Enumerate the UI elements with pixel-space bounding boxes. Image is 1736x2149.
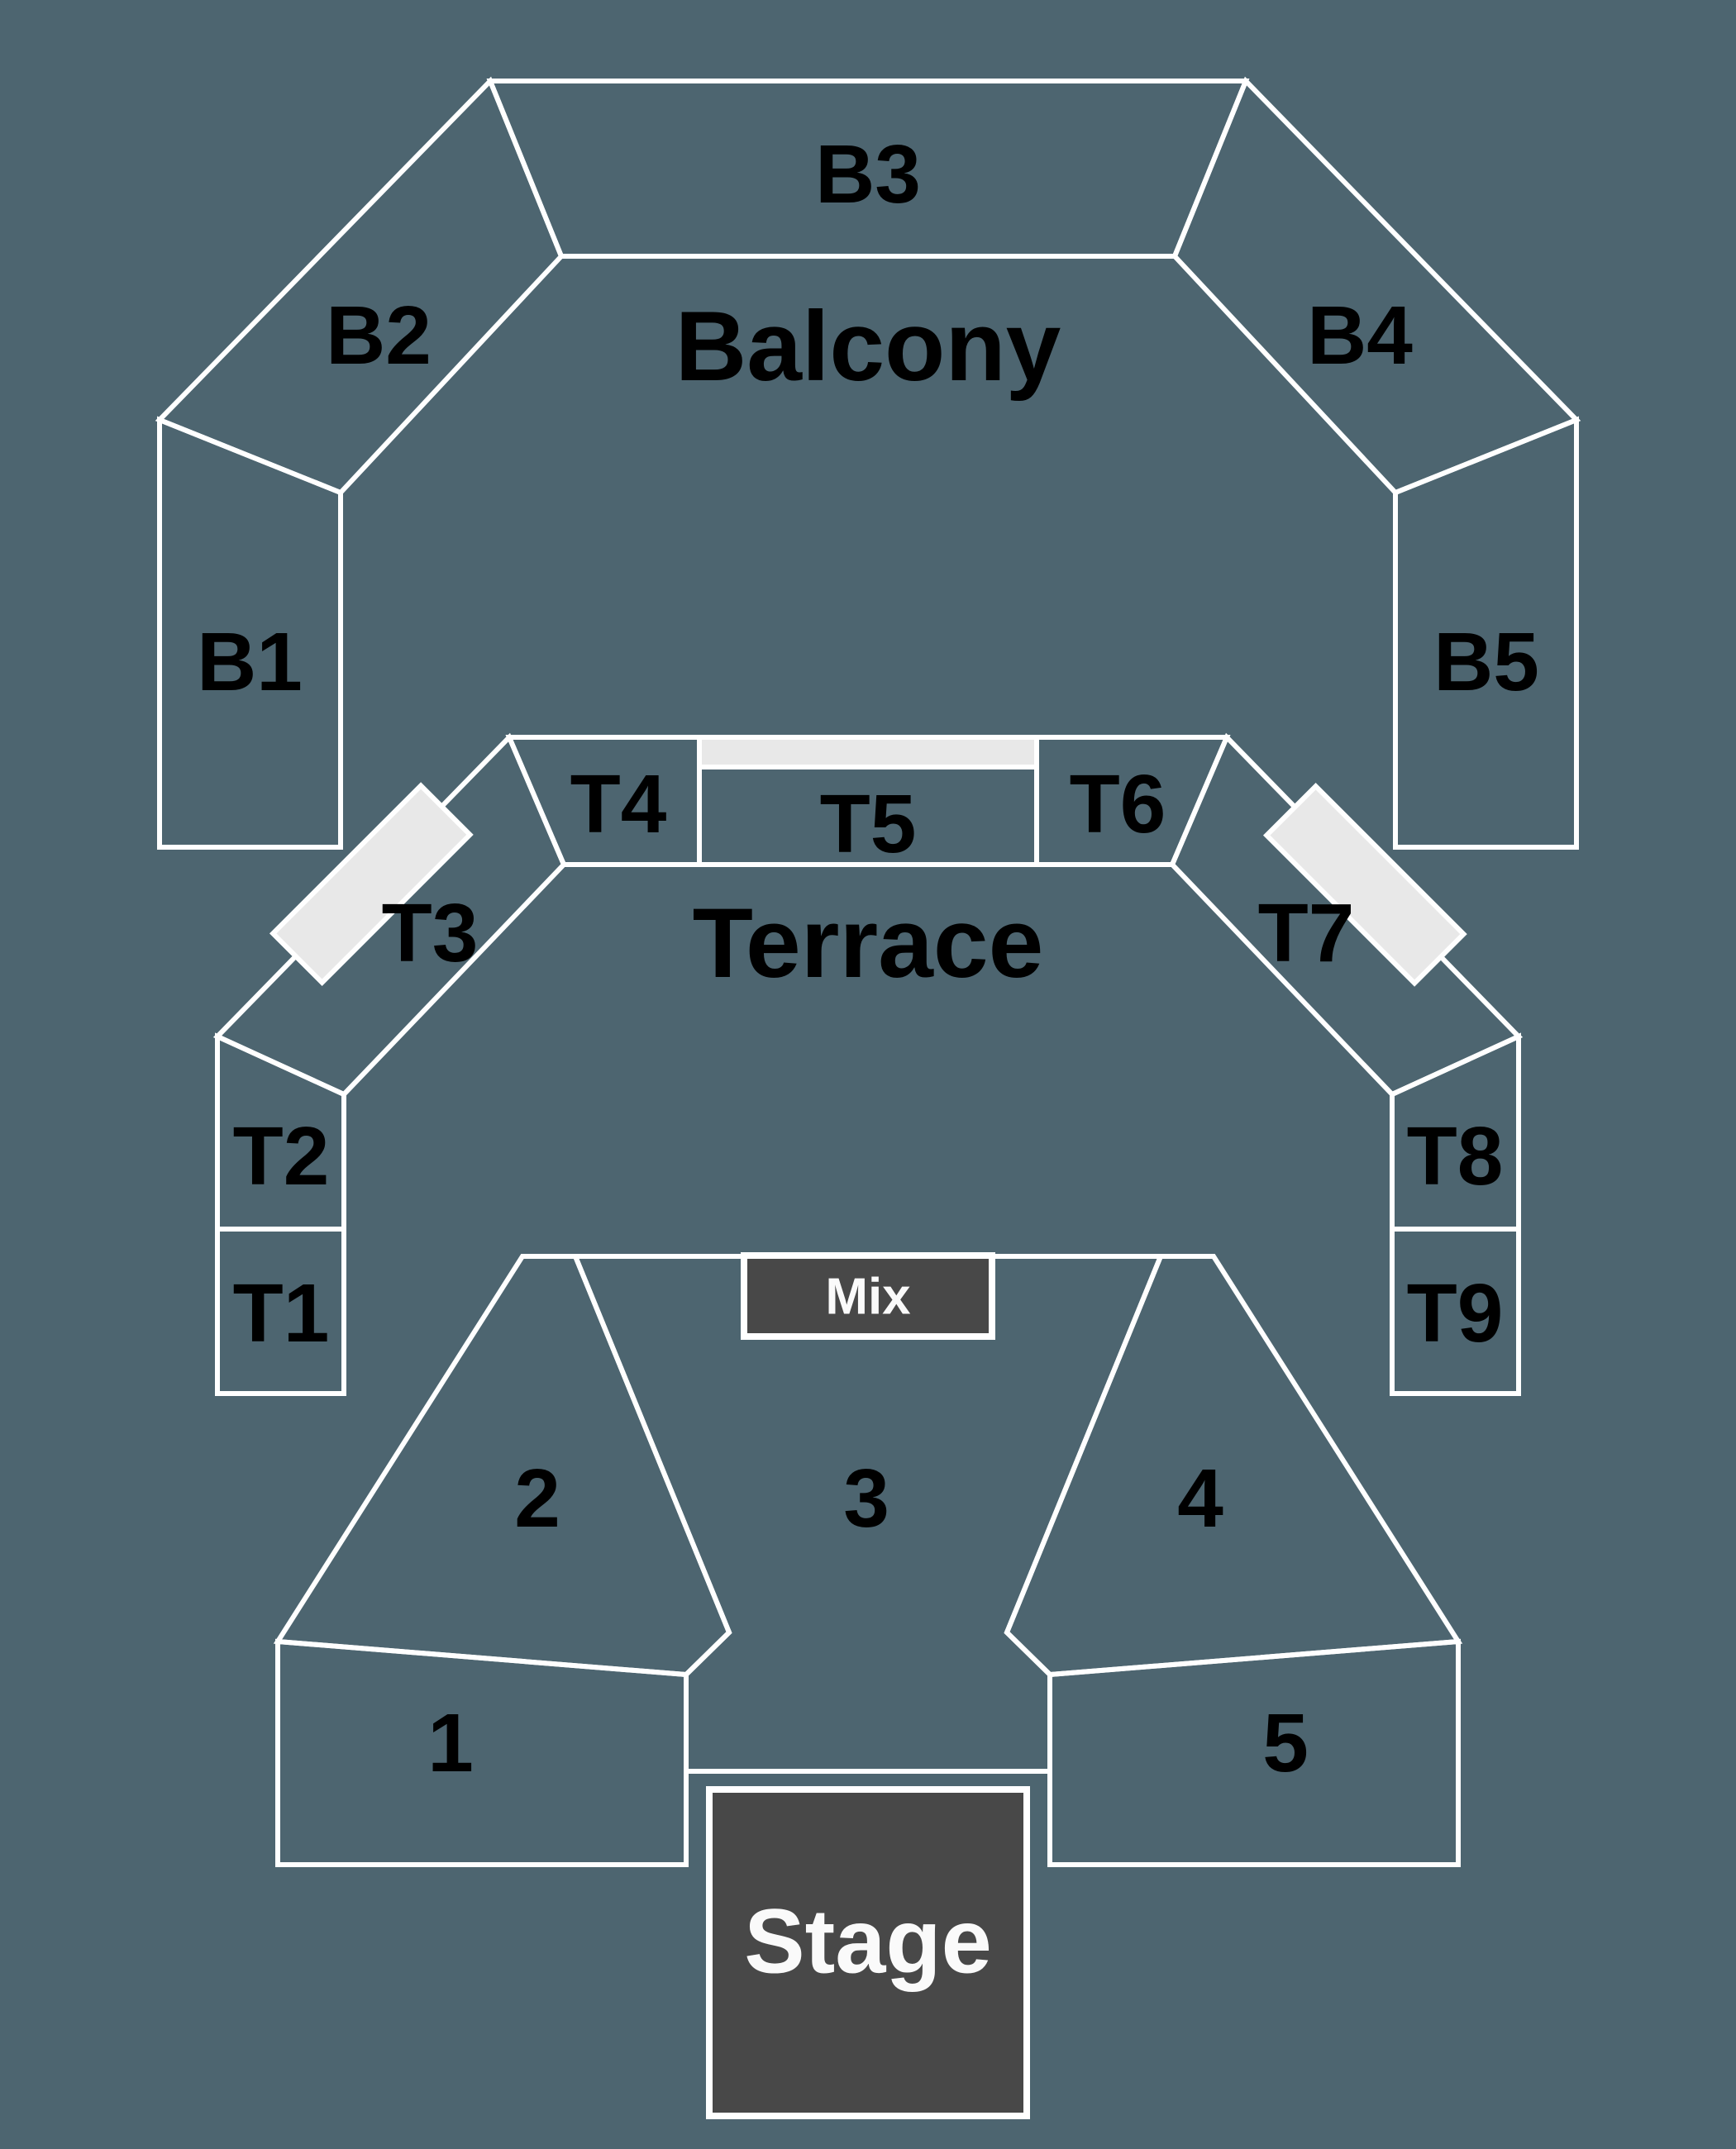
mix-booth-label: Mix [825, 1269, 911, 1326]
section-t4-label: T4 [570, 758, 667, 851]
balcony-level-label: Balcony [675, 291, 1061, 402]
section-floor-5[interactable] [1050, 1642, 1458, 1865]
balcony-level: B1 B2 B3 B4 B5 Balcony [160, 81, 1576, 847]
section-b4[interactable] [1175, 81, 1576, 493]
section-floor-4-label: 4 [1177, 1452, 1223, 1545]
section-b2[interactable] [160, 81, 561, 493]
section-t5-label: T5 [820, 778, 917, 870]
section-t7-label: T7 [1258, 887, 1355, 979]
t5-walkway-strip [699, 737, 1037, 767]
section-floor-2-label: 2 [514, 1452, 560, 1545]
section-t6-label: T6 [1070, 758, 1166, 851]
terrace-level-label: Terrace [693, 888, 1044, 998]
stage-label: Stage [744, 1891, 992, 1993]
section-b1-label: B1 [197, 616, 303, 708]
section-floor-5-label: 5 [1262, 1697, 1309, 1789]
section-t1-label: T1 [233, 1267, 330, 1360]
section-b2-label: B2 [326, 289, 432, 382]
section-b4-label: B4 [1307, 289, 1413, 382]
mix-booth: Mix [744, 1256, 992, 1337]
section-floor-1[interactable] [278, 1642, 686, 1865]
section-b5-label: B5 [1433, 616, 1539, 708]
stage: Stage [709, 1789, 1027, 2116]
section-t8-label: T8 [1407, 1110, 1504, 1203]
section-t9-label: T9 [1407, 1267, 1504, 1360]
seating-chart-canvas: B1 B2 B3 B4 B5 Balcony T1 T2 T3 T4 T5 [0, 0, 1736, 2149]
venue-seating-map: B1 B2 B3 B4 B5 Balcony T1 T2 T3 T4 T5 [0, 0, 1736, 2149]
section-t2-label: T2 [233, 1110, 330, 1203]
section-floor-1-label: 1 [427, 1697, 474, 1789]
section-floor-3-label: 3 [843, 1452, 889, 1545]
section-t3-label: T3 [382, 887, 479, 979]
section-b3-label: B3 [815, 128, 921, 221]
floor-level: 1 2 3 4 5 [278, 1256, 1458, 1865]
